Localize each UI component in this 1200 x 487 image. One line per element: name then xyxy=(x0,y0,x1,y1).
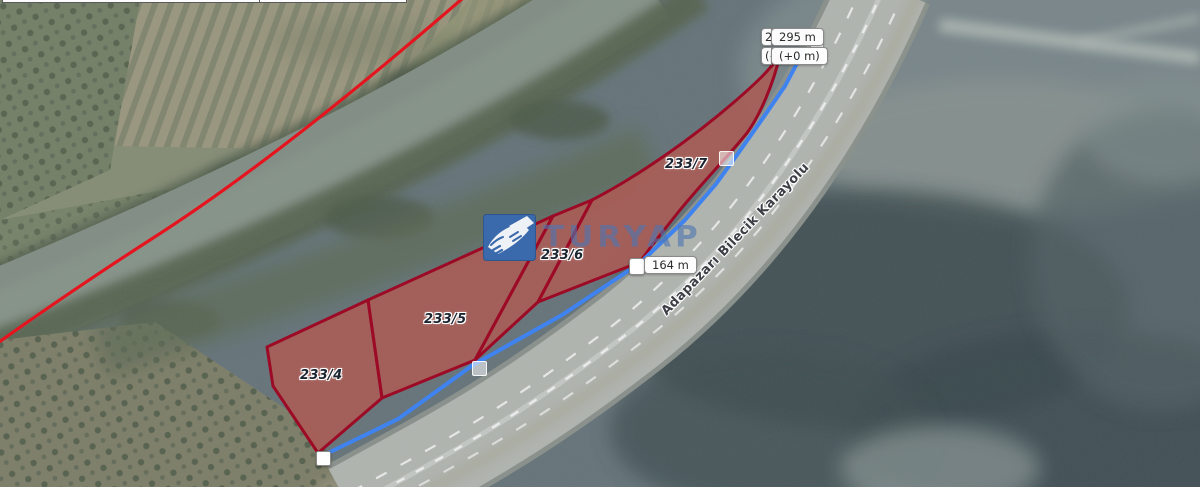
segment-distance-label: 164 m xyxy=(644,256,697,274)
parcel-label-233-4: 233/4 xyxy=(300,368,342,383)
top-strip-divider xyxy=(259,0,260,3)
tooltip-total: 295 m xyxy=(771,28,824,46)
measure-start-handle[interactable] xyxy=(316,451,331,466)
segment-label-handle[interactable] xyxy=(629,258,645,275)
distance-tooltip: 295 m (+0 m) xyxy=(771,28,828,65)
turyap-watermark: TURYAP xyxy=(483,214,702,261)
tooltip-delta: (+0 m) xyxy=(771,47,828,65)
map-canvas[interactable]: TURYAP 233/4 233/5 233/6 233/7 Adapazarı… xyxy=(0,0,1200,487)
handshake-icon xyxy=(483,214,536,261)
parcel-label-233-5: 233/5 xyxy=(424,312,466,327)
parcel-label-233-6: 233/6 xyxy=(541,248,583,263)
parcel-label-233-7: 233/7 xyxy=(665,157,707,172)
measure-midpoint-handle-2[interactable] xyxy=(719,151,734,166)
top-cropped-ui-strip xyxy=(2,0,407,3)
measure-midpoint-handle-1[interactable] xyxy=(472,361,487,376)
